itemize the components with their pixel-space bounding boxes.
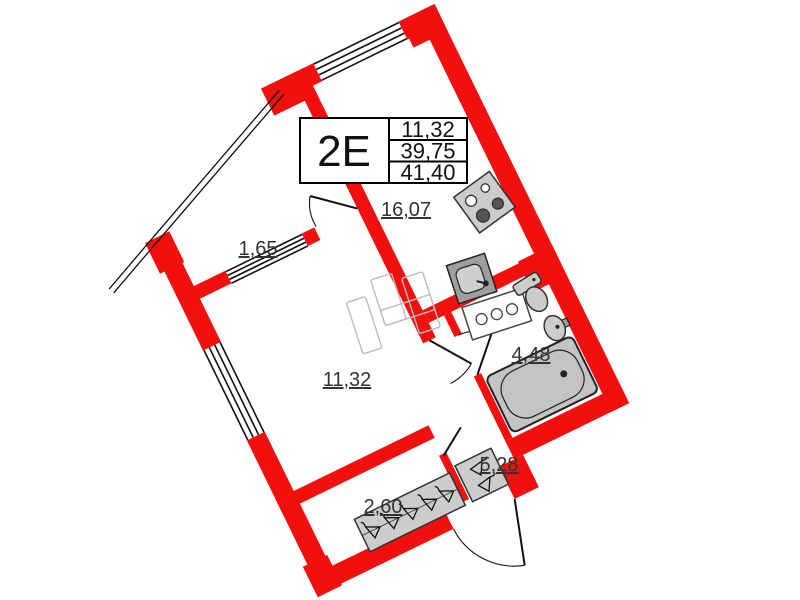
room-label-bedroom: 11,32 bbox=[323, 369, 372, 391]
room-label-kitchen-living: 16,07 bbox=[381, 199, 431, 221]
room-label-hallway: 5,28 bbox=[480, 454, 519, 476]
room-label-bathroom: 4,48 bbox=[512, 344, 551, 366]
plan-type-label: 2E bbox=[317, 127, 371, 176]
title-block: 2E 11,32 39,75 41,40 bbox=[300, 117, 467, 185]
room-label-wardrobe: 2,60 bbox=[364, 496, 403, 518]
floor-plan-page: 2E 11,32 39,75 41,40 16,07 1,65 11,32 4,… bbox=[0, 0, 800, 600]
floor-plan: 2E 11,32 39,75 41,40 16,07 1,65 11,32 4,… bbox=[0, 0, 800, 600]
total-area-value: 41,40 bbox=[400, 160, 455, 185]
room-label-balcony: 1,65 bbox=[239, 238, 278, 260]
